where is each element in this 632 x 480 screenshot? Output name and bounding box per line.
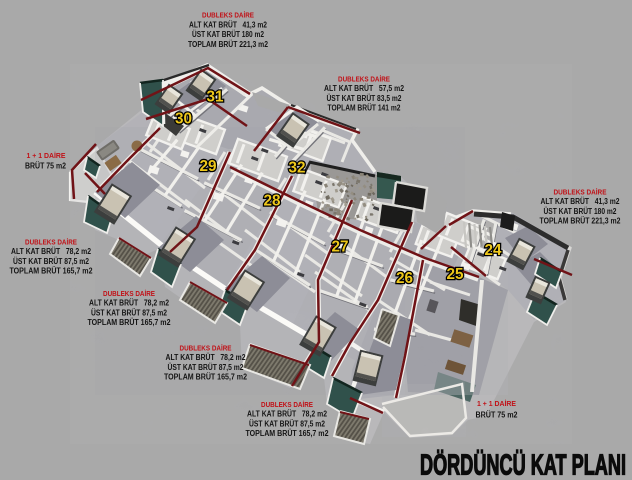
- svg-text:DUBLEKS DAİRE: DUBLEKS DAİRE: [180, 343, 232, 352]
- svg-text:ÜST KAT BRÜT 87,5 m2: ÜST KAT BRÜT 87,5 m2: [249, 419, 326, 428]
- svg-text:DÖRDÜNCÜ KAT PLANI: DÖRDÜNCÜ KAT PLANI: [420, 450, 626, 480]
- svg-text:DUBLEKS DAİRE: DUBLEKS DAİRE: [202, 11, 254, 20]
- svg-text:24: 24: [485, 242, 502, 259]
- svg-text:BRÜT 75 m2: BRÜT 75 m2: [25, 161, 67, 170]
- svg-text:28: 28: [264, 193, 281, 210]
- svg-text:TOPLAM BRÜT 165,7 m2: TOPLAM BRÜT 165,7 m2: [88, 318, 172, 327]
- svg-text:ÜST KAT BRÜT 87,5 m2: ÜST KAT BRÜT 87,5 m2: [168, 363, 245, 372]
- svg-text:1 + 1 DAİRE: 1 + 1 DAİRE: [477, 399, 516, 408]
- svg-text:TOPLAM BRÜT 165,7 m2: TOPLAM BRÜT 165,7 m2: [164, 373, 248, 382]
- svg-text:25: 25: [447, 266, 464, 283]
- svg-text:ALT KAT BRÜT 41,3 m2: ALT KAT BRÜT 41,3 m2: [189, 20, 268, 29]
- svg-text:ÜST KAT BRÜT 87,5 m2: ÜST KAT BRÜT 87,5 m2: [91, 308, 168, 317]
- svg-text:TOPLAM BRÜT 221,3 m2: TOPLAM BRÜT 221,3 m2: [540, 217, 622, 226]
- svg-text:TOPLAM BRÜT 165,7 m2: TOPLAM BRÜT 165,7 m2: [10, 267, 94, 276]
- svg-text:TOPLAM BRÜT 221,3 m2: TOPLAM BRÜT 221,3 m2: [188, 40, 269, 49]
- svg-text:DUBLEKS DAİRE: DUBLEKS DAİRE: [261, 400, 313, 409]
- svg-text:29: 29: [200, 158, 217, 175]
- svg-text:ÜST KAT BRÜT 87,5 m2: ÜST KAT BRÜT 87,5 m2: [13, 257, 90, 266]
- svg-text:DUBLEKS DAİRE: DUBLEKS DAİRE: [554, 187, 607, 196]
- svg-text:DUBLEKS DAİRE: DUBLEKS DAİRE: [25, 237, 77, 246]
- svg-text:26: 26: [396, 270, 413, 287]
- svg-text:ÜST KAT BRÜT 180 m2: ÜST KAT BRÜT 180 m2: [544, 207, 618, 216]
- svg-text:ALT KAT BRÜT 78,2 m2: ALT KAT BRÜT 78,2 m2: [11, 247, 92, 256]
- svg-text:1 + 1 DAİRE: 1 + 1 DAİRE: [27, 151, 66, 160]
- svg-text:TOPLAM BRÜT 141 m2: TOPLAM BRÜT 141 m2: [328, 104, 402, 113]
- svg-text:ALT KAT BRÜT 57,5 m2: ALT KAT BRÜT 57,5 m2: [324, 84, 405, 93]
- svg-text:30: 30: [175, 111, 192, 128]
- svg-text:27: 27: [332, 239, 349, 256]
- svg-text:DUBLEKS DAİRE: DUBLEKS DAİRE: [338, 74, 390, 83]
- svg-text:DUBLEKS DAİRE: DUBLEKS DAİRE: [103, 289, 155, 298]
- svg-text:32: 32: [289, 160, 306, 177]
- svg-text:ALT KAT BRÜT 78,2 m2: ALT KAT BRÜT 78,2 m2: [166, 353, 247, 362]
- svg-text:31: 31: [207, 89, 224, 106]
- svg-text:ÜST KAT BRÜT 83,5 m2: ÜST KAT BRÜT 83,5 m2: [327, 94, 403, 103]
- svg-text:ALT KAT BRÜT 41,3 m2: ALT KAT BRÜT 41,3 m2: [541, 197, 621, 206]
- svg-text:ÜST KAT BRÜT 180 m2: ÜST KAT BRÜT 180 m2: [192, 30, 265, 39]
- svg-text:ALT KAT BRÜT 78,2 m2: ALT KAT BRÜT 78,2 m2: [89, 299, 170, 308]
- svg-text:TOPLAM BRÜT 165,7 m2: TOPLAM BRÜT 165,7 m2: [246, 429, 330, 438]
- svg-text:ALT KAT BRÜT 78,2 m2: ALT KAT BRÜT 78,2 m2: [247, 410, 328, 419]
- svg-text:BRÜT 75 m2: BRÜT 75 m2: [476, 411, 519, 420]
